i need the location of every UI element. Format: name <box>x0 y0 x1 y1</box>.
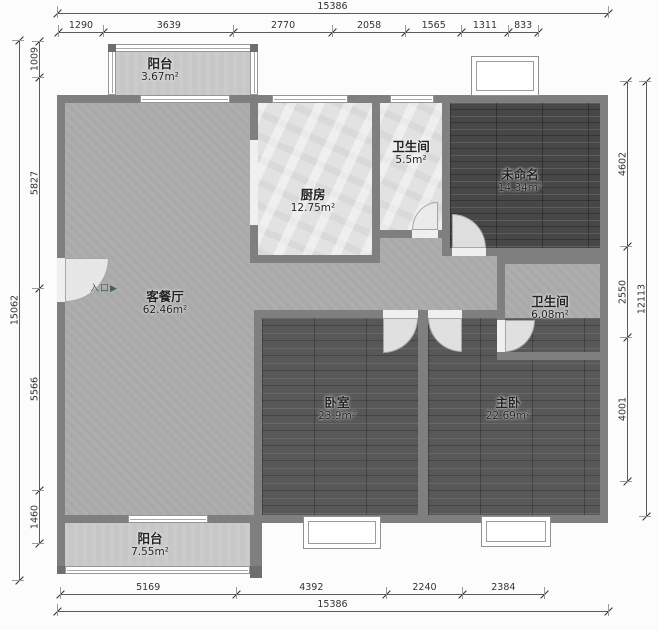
dim-segment: 15062 <box>6 40 24 580</box>
wall-balcony-bottom-right <box>250 515 262 573</box>
room-label-bath-2: 卫生间 6.08m² <box>495 295 605 323</box>
room-name: 阳台 <box>105 57 215 71</box>
dim-value: 4001 <box>618 397 629 421</box>
room-area: 6.08m² <box>495 309 605 323</box>
dim-value: 12113 <box>637 283 648 313</box>
room-label-bedroom: 卧室 23.9m² <box>282 396 392 424</box>
opening-unnamed <box>452 248 486 256</box>
dim-value: 5566 <box>30 377 41 401</box>
dim-value: 15062 <box>10 295 21 325</box>
dim-value: 15386 <box>57 1 608 12</box>
entrance-text: 入口 <box>90 284 110 294</box>
window-bath-1 <box>390 95 434 103</box>
dim-value: 1311 <box>462 20 509 31</box>
dim-left-segments: 1009582755661460 <box>26 41 44 543</box>
dim-value: 2058 <box>332 20 405 31</box>
room-area: 3.67m² <box>105 71 215 85</box>
dim-value: 2240 <box>386 582 462 593</box>
window-kitchen <box>272 95 348 103</box>
dim-segment: 1565 <box>406 19 462 37</box>
bay-window-master-bedroom <box>481 516 551 547</box>
room-area: 7.55m² <box>95 546 205 560</box>
opening-bath-2 <box>497 320 505 352</box>
room-kitchen-floor <box>258 103 372 255</box>
wall-bedroom-divider <box>418 310 428 515</box>
wall-post <box>250 566 262 578</box>
dim-value: 1290 <box>58 20 104 31</box>
wall-outer-left <box>57 95 65 523</box>
dim-segment: 2240 <box>386 581 462 599</box>
window-living-balcony <box>140 95 230 103</box>
room-name: 客餐厅 <box>110 290 220 304</box>
dim-segment: 2550 <box>614 246 632 337</box>
room-area: 23.9m² <box>282 410 392 424</box>
room-name: 卫生间 <box>356 140 466 154</box>
wall-bedrooms-top <box>254 310 505 318</box>
wall-kitchen-bottom <box>250 255 380 263</box>
wall-bath2-top <box>497 256 600 264</box>
room-name: 主卧 <box>453 396 563 410</box>
dim-segment: 1311 <box>462 19 509 37</box>
dim-segment: 5566 <box>26 289 44 491</box>
dim-bottom-segments: 5169439222402384 <box>60 581 544 599</box>
dim-segment: 1009 <box>26 41 44 78</box>
dim-segment: 15386 <box>57 598 608 616</box>
dim-left-total: 15062 <box>6 40 24 580</box>
dim-segment: 4001 <box>614 338 632 482</box>
room-area: 14.34m² <box>465 182 575 196</box>
dim-segment: 5827 <box>26 78 44 289</box>
room-name: 卫生间 <box>495 295 605 309</box>
dim-value: 2770 <box>234 20 333 31</box>
dim-value: 15386 <box>57 599 608 610</box>
room-name: 厨房 <box>258 188 368 202</box>
room-label-living-dining: 客餐厅 62.46m² <box>110 290 220 318</box>
dim-value: 5827 <box>30 171 41 195</box>
room-area: 12.75m² <box>258 202 368 216</box>
wall-post <box>250 44 258 52</box>
wall-post <box>108 44 116 52</box>
dim-value: 2550 <box>618 280 629 304</box>
dim-value: 1565 <box>406 20 462 31</box>
dim-top-segments: 129036392770205815651311833 <box>58 19 538 37</box>
dim-segment: 833 <box>508 19 538 37</box>
wall-kitchen-bath1-divider <box>372 95 380 263</box>
dim-value: 4602 <box>618 151 629 175</box>
dim-segment: 3639 <box>104 19 234 37</box>
dim-segment: 1290 <box>58 19 104 37</box>
dim-segment: 2384 <box>463 581 544 599</box>
dim-value: 1460 <box>30 504 41 528</box>
dim-segment: 12113 <box>633 81 651 516</box>
room-name: 未命名 <box>465 168 575 182</box>
dim-value: 2384 <box>463 582 544 593</box>
wall-bedroom-left <box>254 310 262 515</box>
opening-bedroom <box>383 310 418 318</box>
room-label-bath-1: 卫生间 5.5m² <box>356 140 466 168</box>
dim-top-total: 15386 <box>57 0 608 18</box>
window-balcony-bottom <box>65 566 250 574</box>
dim-value: 1009 <box>30 47 41 71</box>
wall-bath1-unnamed-divider <box>442 95 450 256</box>
room-label-balcony-bottom: 阳台 7.55m² <box>95 532 205 560</box>
room-label-balcony-top: 阳台 3.67m² <box>105 57 215 85</box>
bay-window-bedroom <box>303 516 381 549</box>
dim-segment: 2770 <box>234 19 333 37</box>
opening-entrance <box>57 258 65 302</box>
room-label-kitchen: 厨房 12.75m² <box>258 188 368 216</box>
floor-plan: 15386 129036392770205815651311833 516943… <box>0 0 658 630</box>
dim-segment: 15386 <box>57 0 608 18</box>
wall-balcony-bottom-left <box>57 515 65 566</box>
window-living-balcony-bottom <box>128 515 208 523</box>
dim-segment: 4602 <box>614 81 632 246</box>
opening-kitchen <box>250 140 258 225</box>
dim-value: 5169 <box>60 582 236 593</box>
dim-segment: 1460 <box>26 490 44 543</box>
dim-value: 833 <box>508 20 538 31</box>
dim-value: 3639 <box>104 20 234 31</box>
opening-master-bedroom <box>428 310 462 318</box>
entrance-label: 入口▶ <box>90 281 118 294</box>
room-label-master-bedroom: 主卧 22.69m² <box>453 396 563 424</box>
room-name: 阳台 <box>95 532 205 546</box>
wall-post <box>57 566 65 574</box>
dim-right-total: 12113 <box>633 81 651 516</box>
dim-bottom-total: 15386 <box>57 598 608 616</box>
window-balcony-top <box>108 44 258 52</box>
room-area: 5.5m² <box>356 154 466 168</box>
entrance-arrow-icon: ▶ <box>110 284 118 294</box>
dim-value: 4392 <box>236 582 386 593</box>
dim-segment: 2058 <box>332 19 405 37</box>
bay-window-unnamed <box>471 56 539 96</box>
dim-right-segments: 460225504001 <box>614 81 632 481</box>
wall-bath2-bottom <box>497 352 608 360</box>
room-name: 卧室 <box>282 396 392 410</box>
room-area: 22.69m² <box>453 410 563 424</box>
opening-bath-1 <box>412 230 438 238</box>
dim-segment: 4392 <box>236 581 386 599</box>
dim-segment: 5169 <box>60 581 236 599</box>
room-label-unnamed: 未命名 14.34m² <box>465 168 575 196</box>
room-area: 62.46m² <box>110 304 220 318</box>
